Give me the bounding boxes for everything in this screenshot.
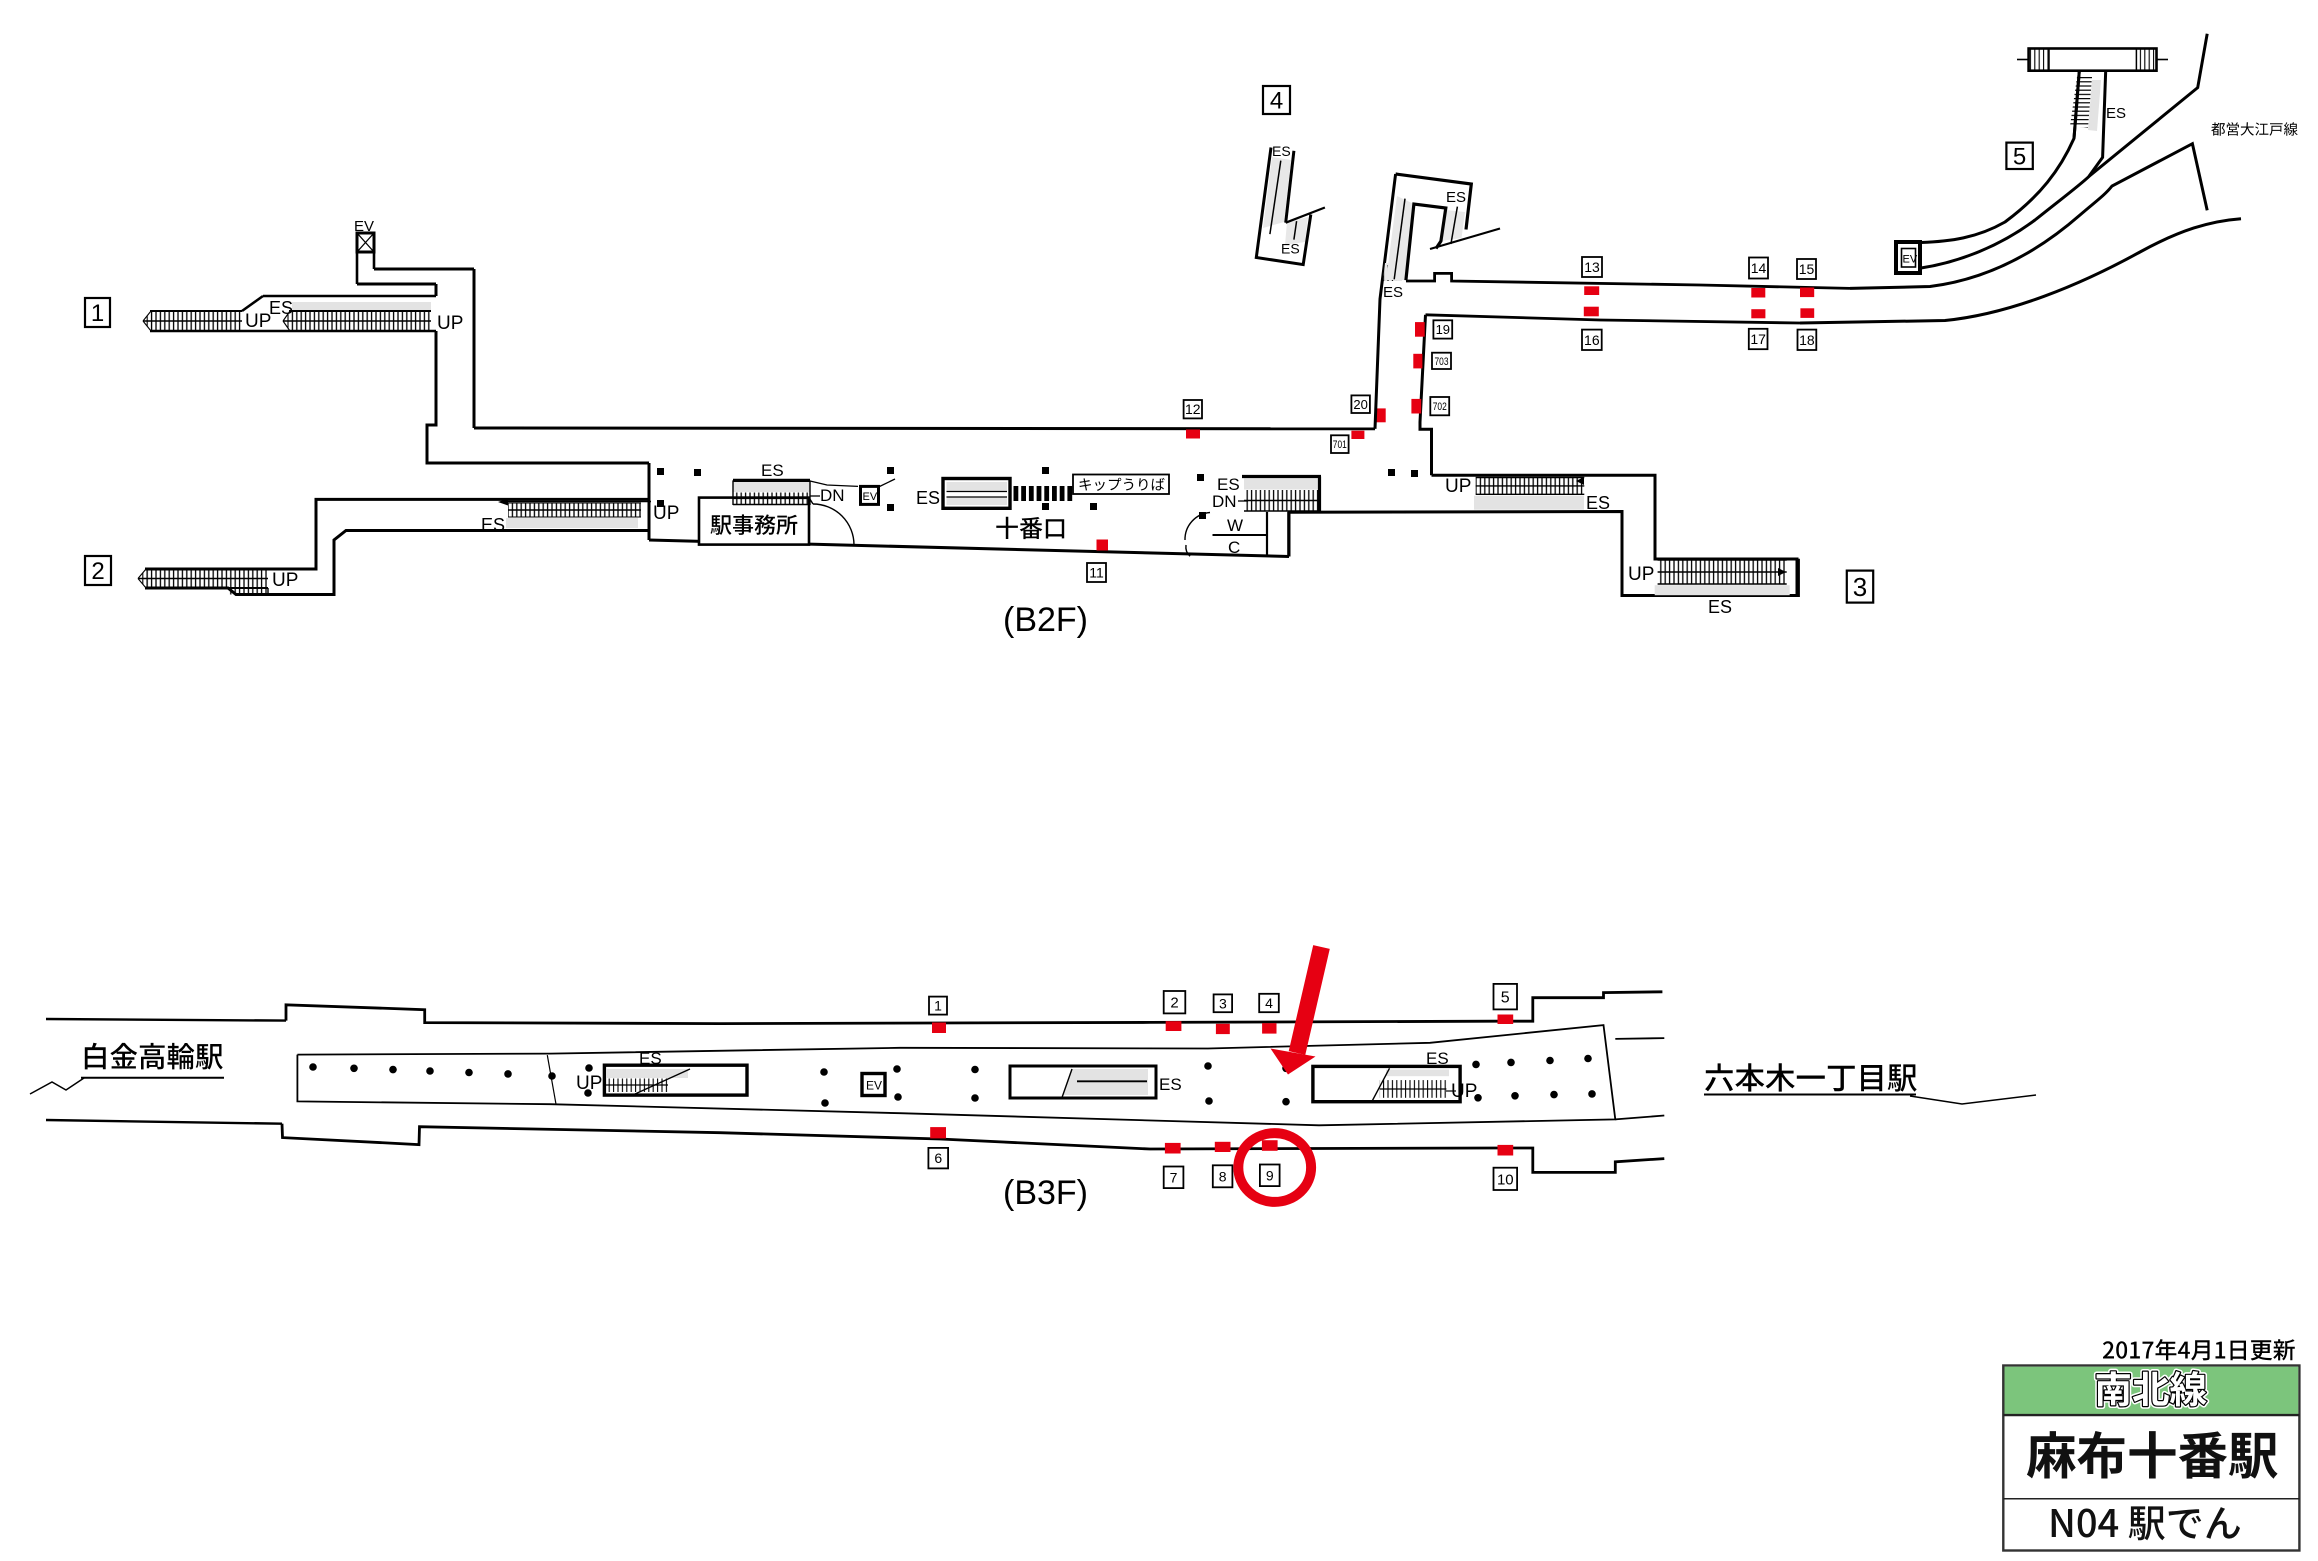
svg-text:5: 5: [1501, 989, 1510, 1006]
svg-text:1: 1: [934, 998, 942, 1014]
svg-text:UP: UP: [437, 313, 463, 334]
svg-text:ES: ES: [1159, 1075, 1182, 1094]
svg-text:(B3F): (B3F): [1003, 1174, 1088, 1212]
svg-text:8: 8: [1219, 1168, 1227, 1184]
svg-text:W: W: [1227, 516, 1243, 535]
svg-text:DN: DN: [1212, 492, 1237, 511]
svg-text:ES: ES: [1272, 143, 1291, 159]
svg-text:7: 7: [1170, 1169, 1178, 1185]
svg-text:12: 12: [1185, 401, 1201, 417]
svg-text:20: 20: [1353, 397, 1367, 412]
svg-text:ES: ES: [1586, 493, 1610, 513]
svg-text:19: 19: [1436, 322, 1450, 337]
svg-text:ES: ES: [1281, 241, 1300, 257]
svg-text:3: 3: [1853, 572, 1867, 602]
svg-text:4: 4: [1270, 88, 1283, 115]
svg-text:ES: ES: [1446, 189, 1466, 206]
svg-text:9: 9: [1266, 1167, 1274, 1183]
svg-text:EV: EV: [866, 1079, 882, 1093]
svg-text:UP: UP: [1445, 476, 1471, 497]
svg-text:ES: ES: [481, 515, 505, 535]
svg-text:3: 3: [1219, 995, 1227, 1011]
svg-text:DN: DN: [820, 486, 845, 505]
svg-text:16: 16: [1584, 332, 1600, 348]
svg-text:ES: ES: [916, 488, 940, 508]
svg-text:1: 1: [91, 300, 104, 327]
svg-text:702: 702: [1433, 401, 1447, 413]
svg-text:703: 703: [1435, 356, 1449, 368]
svg-text:6: 6: [934, 1150, 942, 1166]
svg-text:18: 18: [1799, 332, 1815, 348]
svg-text:15: 15: [1799, 261, 1815, 277]
svg-text:UP: UP: [272, 570, 298, 591]
svg-text:ES: ES: [2106, 105, 2126, 122]
svg-text:ES: ES: [761, 461, 784, 480]
svg-text:ES: ES: [1383, 284, 1403, 301]
svg-text:C: C: [1228, 538, 1240, 557]
svg-text:11: 11: [1089, 565, 1104, 581]
svg-text:UP: UP: [245, 311, 271, 332]
svg-text:(B2F): (B2F): [1003, 601, 1088, 639]
svg-text:14: 14: [1751, 260, 1767, 276]
svg-text:13: 13: [1584, 259, 1600, 275]
svg-text:ES: ES: [1426, 1049, 1449, 1068]
svg-text:2: 2: [1170, 995, 1178, 1012]
svg-text:EV: EV: [863, 491, 878, 503]
svg-text:ES: ES: [639, 1049, 662, 1068]
svg-text:10: 10: [1497, 1171, 1514, 1188]
svg-text:17: 17: [1750, 331, 1766, 347]
svg-text:5: 5: [2013, 143, 2026, 170]
svg-text:EV: EV: [1903, 254, 1918, 266]
svg-text:UP: UP: [576, 1073, 602, 1094]
svg-text:ES: ES: [1708, 597, 1732, 617]
svg-text:4: 4: [1265, 995, 1273, 1011]
svg-text:2: 2: [91, 558, 104, 585]
svg-text:701: 701: [1333, 439, 1347, 451]
svg-text:UP: UP: [1628, 564, 1654, 585]
svg-text:UP: UP: [653, 503, 679, 524]
